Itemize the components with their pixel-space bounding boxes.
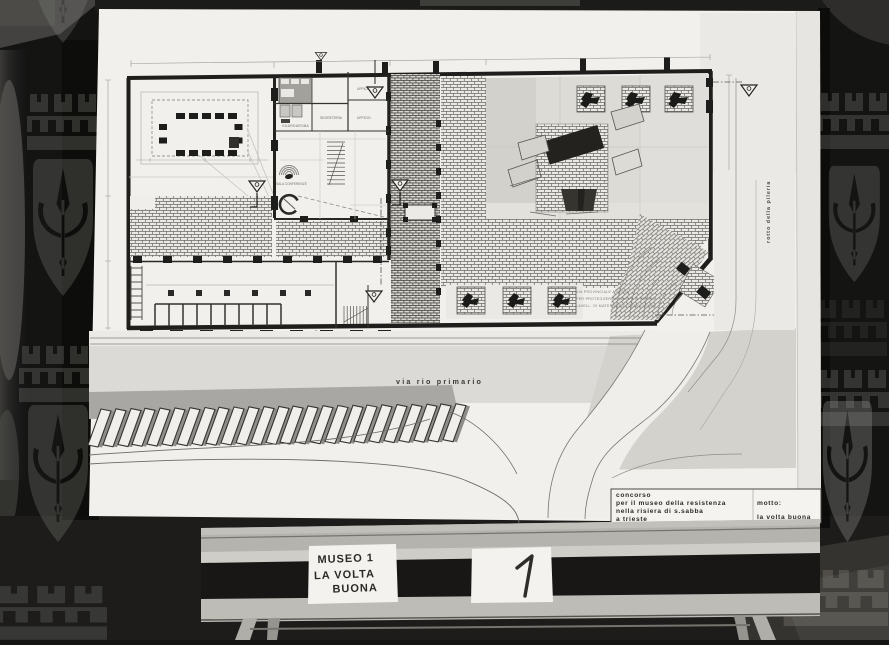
svg-text:motto:: motto:	[757, 500, 782, 507]
svg-text:GUARDAROBA: GUARDAROBA	[282, 124, 310, 128]
svg-text:MUSEO 1: MUSEO 1	[317, 552, 374, 566]
svg-text:SALA CONFERENZE: SALA CONFERENZE	[276, 182, 307, 186]
svg-text:LA VOLTA: LA VOLTA	[314, 568, 375, 582]
svg-text:via rio primario: via rio primario	[396, 377, 483, 386]
svg-text:BUONA: BUONA	[332, 582, 378, 596]
svg-text:nella risiera di s.sabba: nella risiera di s.sabba	[616, 508, 704, 515]
svg-text:LAVELL. DI MATERIALE DI DEMO: LAVELL. DI MATERIALE DI DEMOLIZIONE	[576, 304, 657, 308]
svg-text:concorso: concorso	[616, 492, 651, 499]
svg-text:UFFICIO: UFFICIO	[357, 116, 371, 120]
svg-text:PER PROTEGGERE A LAVORI D. P: PER PROTEGGERE A LAVORI D. PIETRA	[576, 297, 655, 301]
svg-text:SEGRETERIA: SEGRETERIA	[320, 116, 343, 120]
svg-text:per il museo della resistenza: per il museo della resistenza	[616, 500, 726, 507]
svg-text:VIA PROVINCIALE A VETTA: VIA PROVINCIALE A VETTA	[576, 290, 629, 294]
svg-text:rotto della pileria: rotto della pileria	[766, 181, 772, 243]
